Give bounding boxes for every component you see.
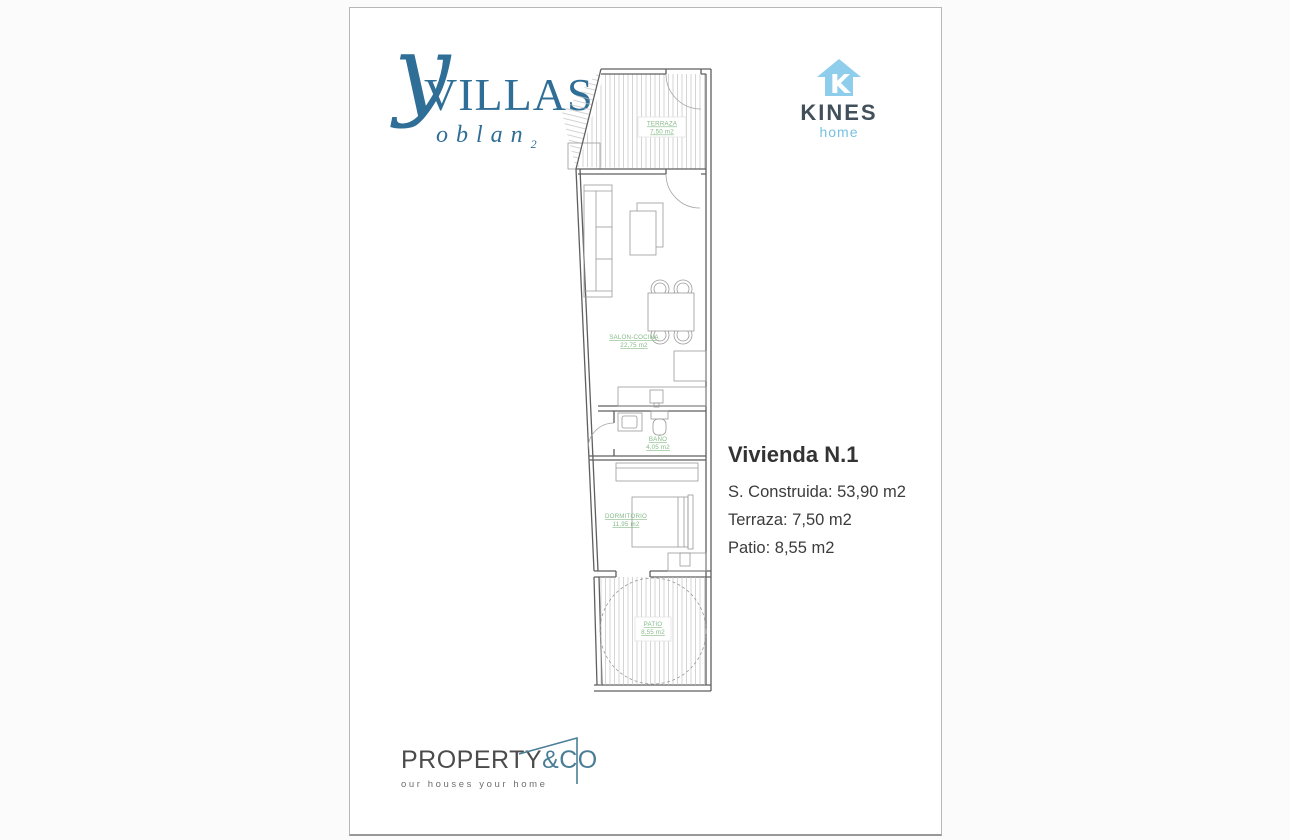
toilet <box>651 411 668 435</box>
bano-area: 4,05 m2 <box>646 444 670 451</box>
property-wordmark-row: PROPERTY&CO <box>401 746 601 775</box>
bed <box>632 495 693 566</box>
villas-subtitle-text: oblan <box>436 122 531 148</box>
svg-text:K: K <box>830 70 851 98</box>
villas-subtitle-index: 2 <box>531 137 537 151</box>
unit-terrace-area: Terraza: 7,50 m2 <box>728 506 906 534</box>
coffee-table <box>630 203 663 255</box>
property-roof-icon <box>517 734 587 786</box>
bedroom-closet <box>668 553 706 571</box>
patio-label: PATIO <box>644 621 663 628</box>
stage: y VILLAS oblan2 K KINES home <box>0 0 1290 840</box>
unit-title: Vivienda N.1 <box>728 442 906 468</box>
unit-built-area: S. Construida: 53,90 m2 <box>728 478 906 506</box>
kitchen-counter <box>618 351 706 407</box>
salon-area: 22,75 m2 <box>620 342 648 349</box>
dormitorio-label: DORMITORIO <box>605 513 647 520</box>
unit-patio-area: Patio: 8,55 m2 <box>728 534 906 562</box>
terraza-label: TERRAZA <box>647 121 678 128</box>
property-logo: PROPERTY&CO our houses your home <box>401 746 601 790</box>
dormitorio-area: 11,95 m2 <box>613 521 640 528</box>
salon-label: SALON-COCINA <box>609 334 659 341</box>
unit-info: Vivienda N.1 S. Construida: 53,90 m2 Ter… <box>728 442 906 562</box>
terraza-area: 7,50 m2 <box>650 129 674 136</box>
kines-subtitle: home <box>794 124 884 140</box>
document-page: y VILLAS oblan2 K KINES home <box>349 7 942 836</box>
floorplan-drawing: TERRAZA 7,50 m2 SALON-COCINA 22,75 m2 BA… <box>554 51 724 701</box>
bathroom-sink <box>618 413 642 431</box>
kines-wordmark: KINES <box>794 100 884 126</box>
kines-logo: K KINES home <box>794 58 884 140</box>
kines-house-k-icon: K <box>816 58 862 98</box>
villas-subtitle: oblan2 <box>436 122 537 152</box>
wardrobe <box>616 463 698 481</box>
patio-area: 8,55 m2 <box>641 629 665 636</box>
sofa <box>584 185 612 297</box>
bano-label: BAÑO <box>649 436 667 443</box>
